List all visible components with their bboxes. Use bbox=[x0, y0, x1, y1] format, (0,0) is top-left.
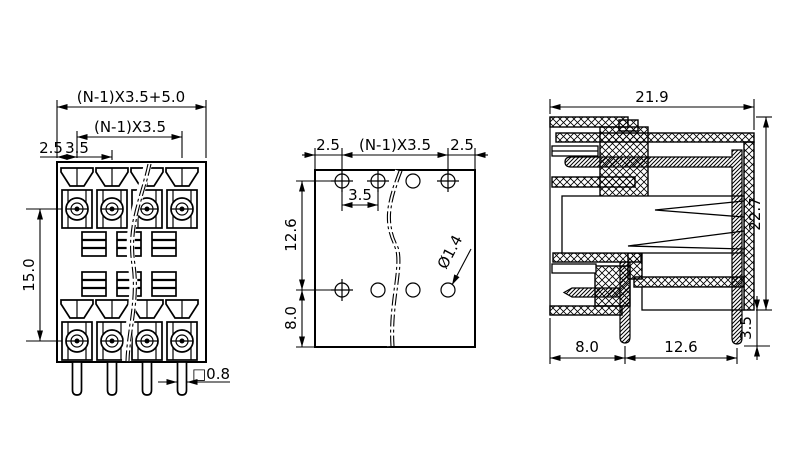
dim-pcb-bottom-offset-label: 8.0 bbox=[282, 306, 300, 330]
front-pin-horizontal bbox=[564, 288, 620, 297]
dim-right-margin-label: 2.5 bbox=[450, 136, 474, 154]
dim-overall-width-label: (N-1)X3.5+5.0 bbox=[77, 88, 185, 106]
dim-pin-square-label: □0.8 bbox=[192, 365, 230, 383]
dim-pin-row-spacing-label: 12.6 bbox=[664, 338, 697, 356]
dim-pcb-pitch-span-label: (N-1)X3.5 bbox=[359, 136, 431, 154]
dim-total-height-label: 22.7 bbox=[746, 197, 764, 230]
front-pins bbox=[73, 362, 187, 395]
dim-pin-protrusion-label: 3.5 bbox=[737, 316, 755, 340]
front-view: (N-1)X3.5+5.0 (N-1)X3.5 2.5 3.5 15.0 □0.… bbox=[20, 88, 230, 395]
technical-drawing-terminal-block: (N-1)X3.5+5.0 (N-1)X3.5 2.5 3.5 15.0 □0.… bbox=[0, 0, 800, 457]
dim-pitch-label: 3.5 bbox=[65, 139, 89, 157]
dim-row-spacing-label: 15.0 bbox=[20, 258, 38, 291]
dim-pcb-pitch-label: 3.5 bbox=[348, 186, 372, 204]
front-pin bbox=[620, 262, 630, 343]
pcb-layout-view: 2.5 (N-1)X3.5 2.5 3.5 12.6 8.0 Ø1.4 bbox=[282, 136, 488, 347]
dim-total-depth-label: 21.9 bbox=[635, 88, 668, 106]
side-section-view: 21.9 22.7 3.5 8.0 12.6 bbox=[550, 88, 772, 364]
dim-edge-offset-label: 2.5 bbox=[39, 139, 63, 157]
dim-pitch-span-label: (N-1)X3.5 bbox=[94, 118, 166, 136]
dim-pcb-row-spacing-label: 12.6 bbox=[282, 218, 300, 251]
dim-front-pin-offset-label: 8.0 bbox=[575, 338, 599, 356]
dim-left-margin-label: 2.5 bbox=[316, 136, 340, 154]
